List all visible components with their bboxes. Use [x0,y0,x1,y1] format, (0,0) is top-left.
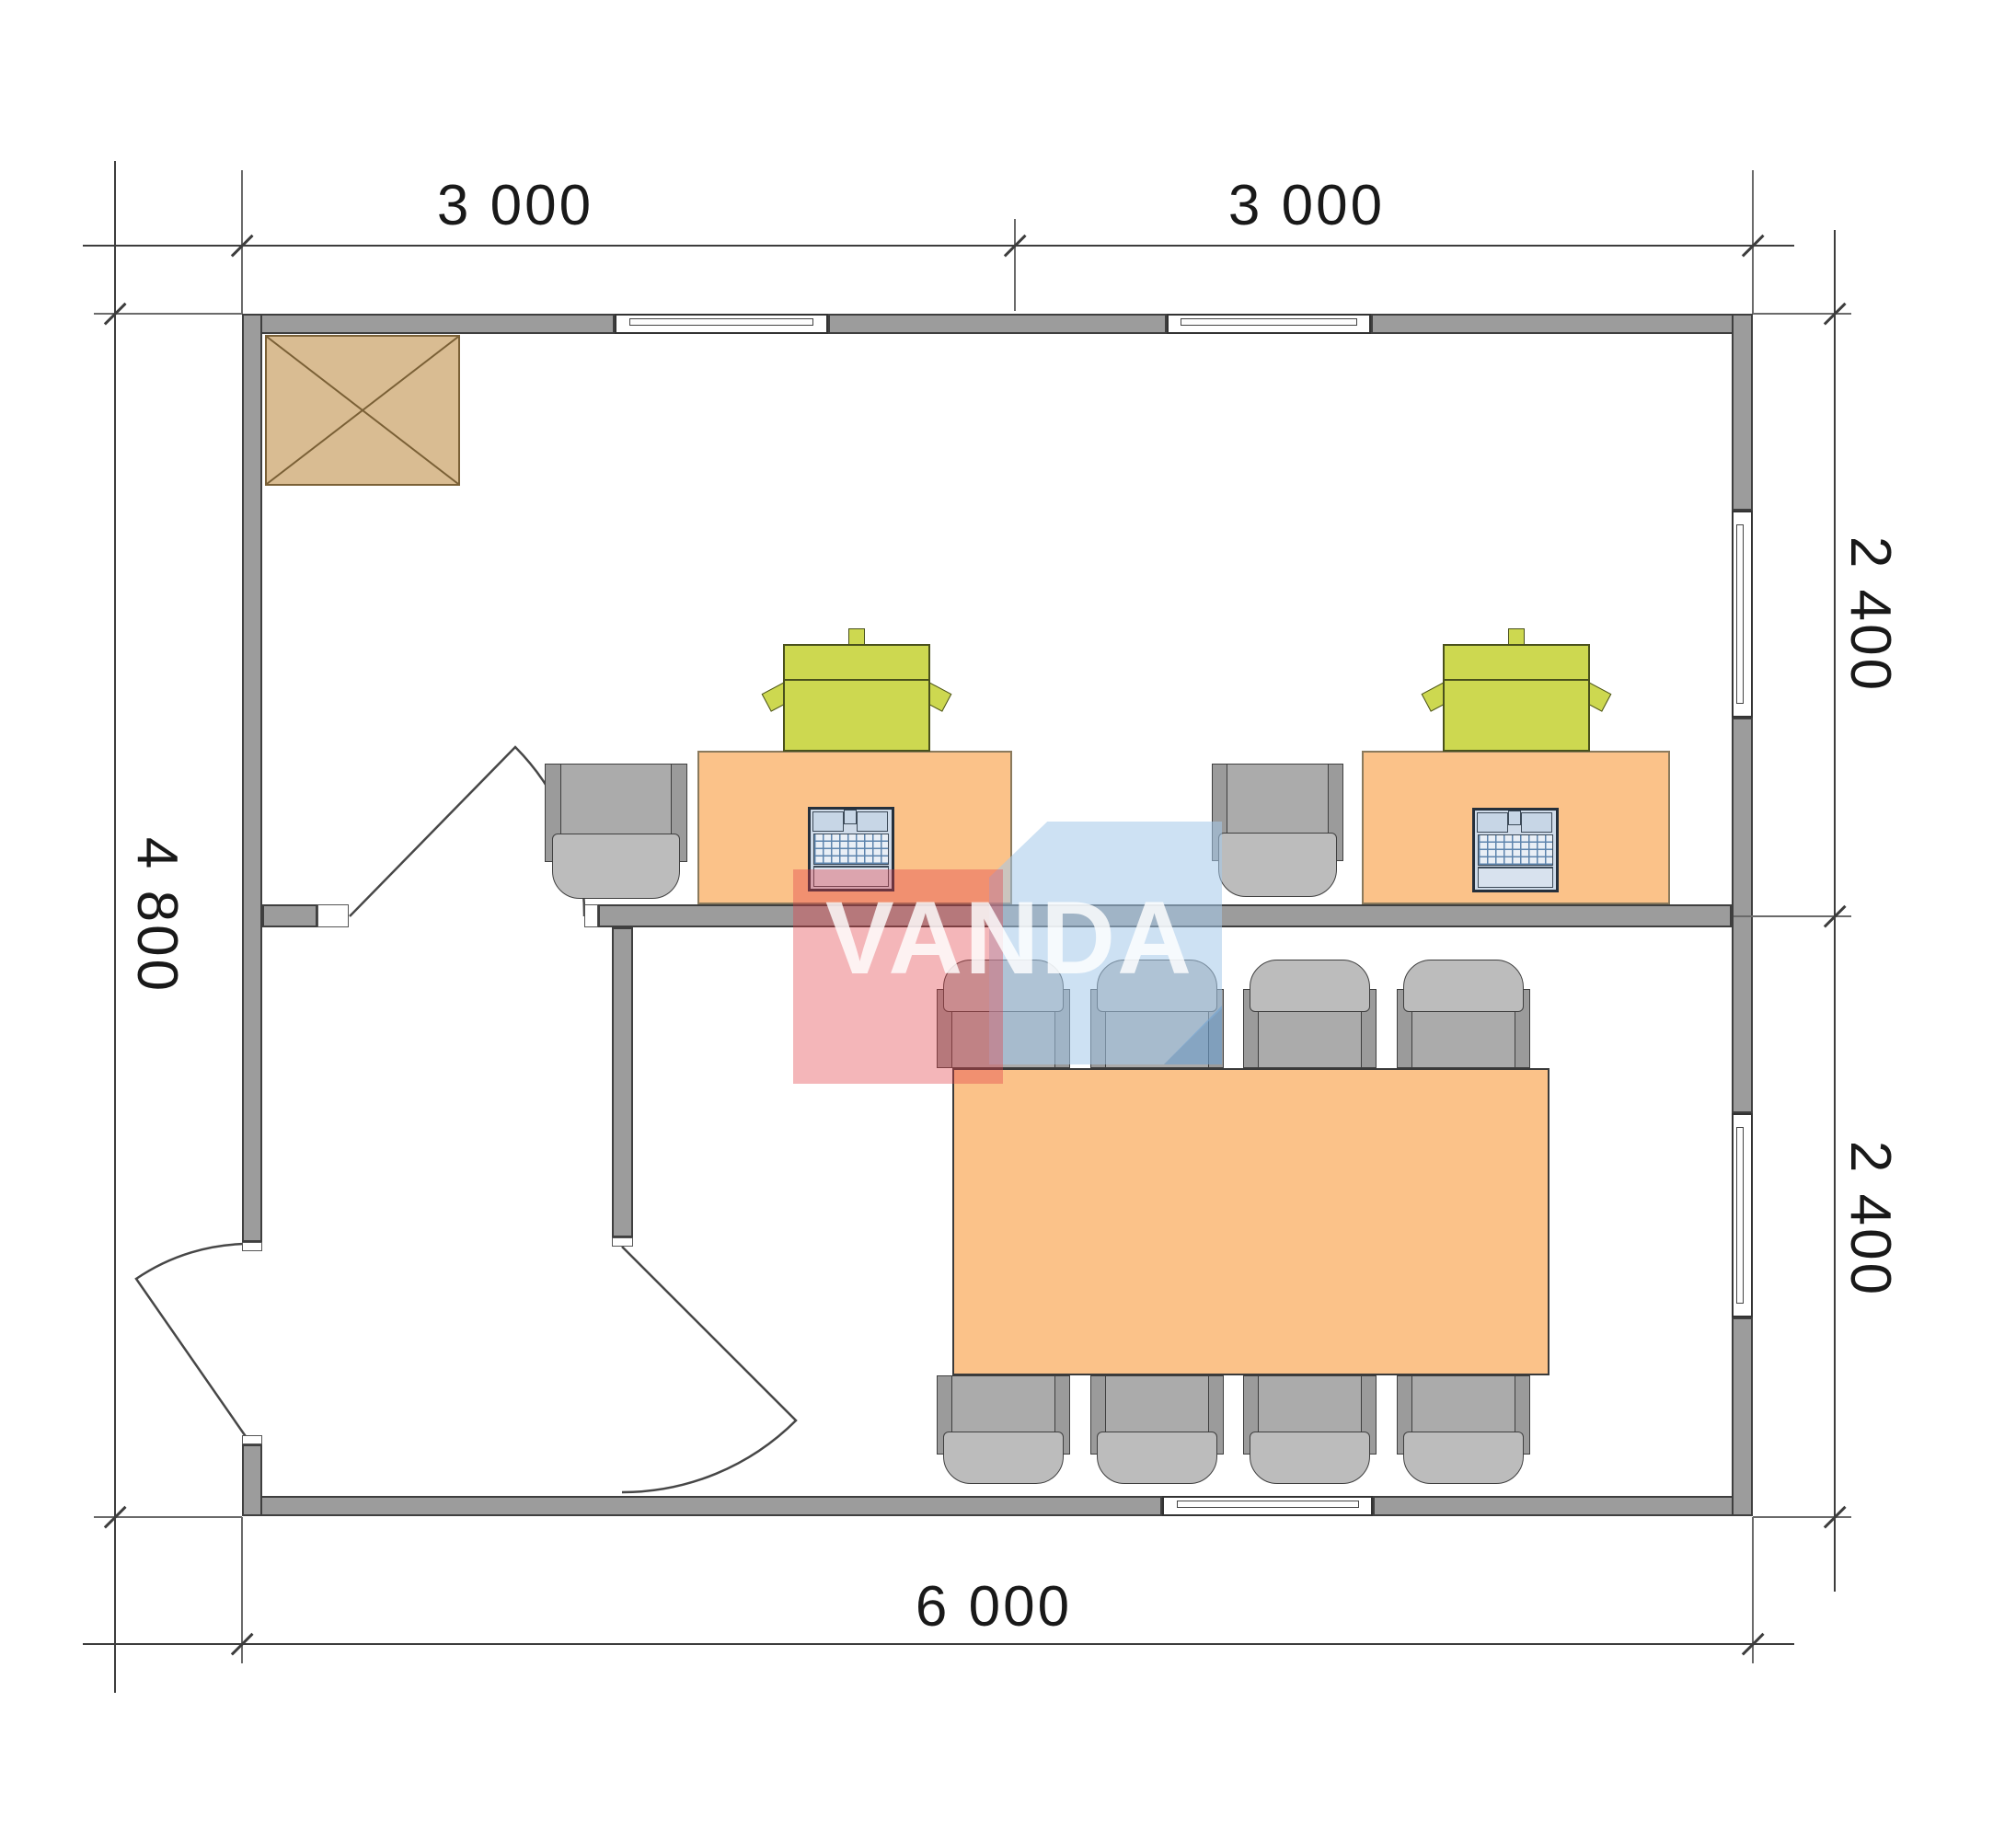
dimensions-layer: 3 000 3 000 2 400 2 400 4 800 6 000 [0,0,2016,1840]
ext-top-mid [1014,219,1016,311]
dimline-bottom [83,1643,1794,1645]
dim-label-top-right: 3 000 [1228,178,1385,235]
dimline-left [114,161,116,1693]
dimline-right [1834,230,1836,1592]
dim-label-right-top: 2 400 [1841,536,1898,693]
dim-label-left: 4 800 [128,837,185,994]
dimline-top [83,245,1794,247]
dim-label-right-bottom: 2 400 [1841,1141,1898,1297]
dim-label-bottom: 6 000 [916,1579,1072,1636]
dim-label-top-left: 3 000 [437,178,593,235]
floor-plan: VANDA 3 000 3 000 2 400 2 400 4 800 6 00… [0,0,2016,1840]
